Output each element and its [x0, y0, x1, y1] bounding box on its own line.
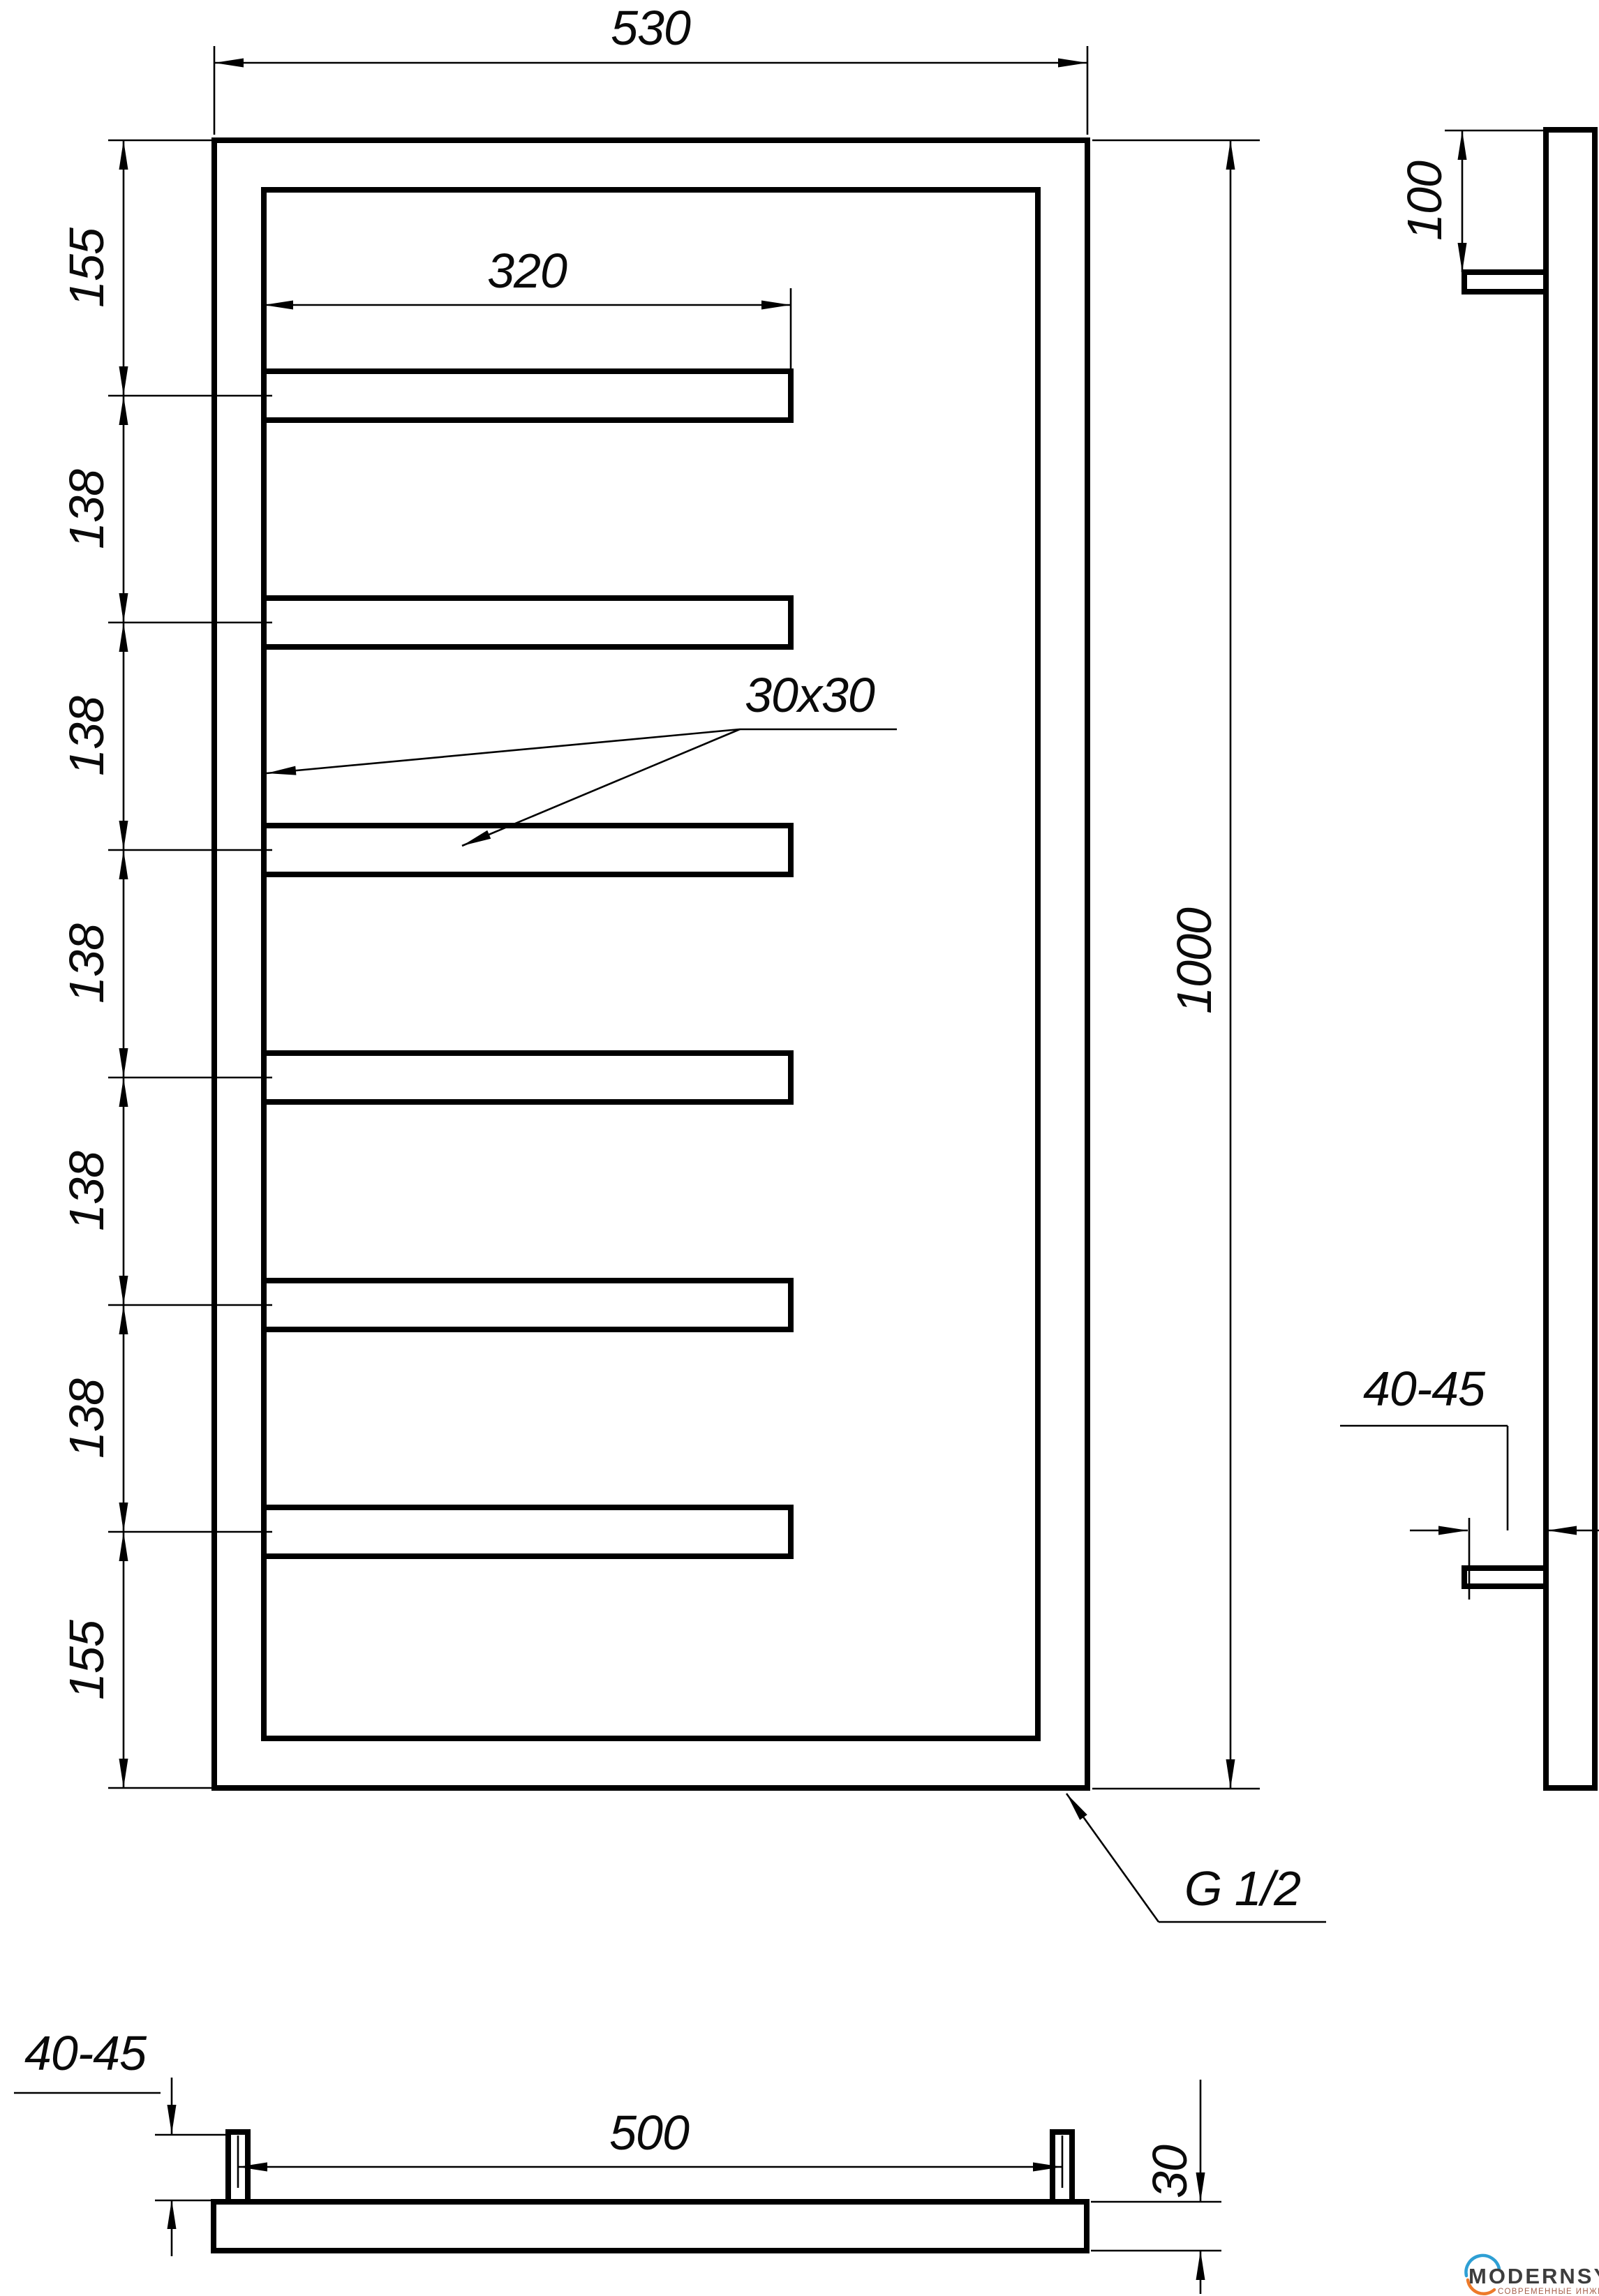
side-rail	[1546, 130, 1595, 1788]
dim-label-30: 30	[1143, 2145, 1197, 2198]
dim-label-40-45-bottom: 40-45	[24, 2026, 147, 2080]
bottom-rail	[214, 2202, 1087, 2251]
dim-bottom-30: 30	[1091, 2080, 1221, 2294]
side-view	[1464, 130, 1595, 1788]
front-bar-1	[264, 371, 791, 420]
front-view	[214, 140, 1087, 1788]
dim-label-138-3: 138	[59, 923, 114, 1004]
logo-brand-text: MODERNSYS	[1468, 2264, 1599, 2288]
logo-tagline-text: СОВРЕМЕННЫЕ ИНЖЕНЕРНЫЕ СИСТЕМЫ	[1498, 2288, 1599, 2296]
front-bar-3	[264, 826, 791, 874]
leader-line	[1066, 1794, 1159, 1922]
leader-thread-g12: G 1/2	[1066, 1794, 1326, 1922]
logo: MODERNSYS СОВРЕМЕННЫЕ ИНЖЕНЕРНЫЕ СИСТЕМЫ	[1466, 2256, 1599, 2296]
front-bar-2	[264, 598, 791, 647]
dim-height-1000: 1000	[1092, 140, 1260, 1789]
dim-label-138-1: 138	[59, 469, 114, 549]
dim-label-530: 530	[611, 1, 691, 55]
dim-label-155-bottom: 155	[59, 1619, 114, 1700]
dim-label-138-5: 138	[59, 1378, 114, 1459]
side-bracket-top	[1464, 272, 1546, 292]
dim-label-155-top: 155	[59, 227, 114, 308]
dim-side-100: 100	[1397, 131, 1567, 272]
dim-width-530: 530	[214, 1, 1087, 135]
front-bar-5	[264, 1281, 791, 1329]
dim-bottom-500: 500	[238, 2105, 1062, 2188]
dim-label-320: 320	[487, 244, 567, 298]
dim-label-g12: G 1/2	[1184, 1861, 1300, 1916]
technical-drawing: 530 320 155 138 138 138 138 138 155	[0, 0, 1599, 2296]
dim-label-1000: 1000	[1167, 907, 1221, 1014]
dim-label-138-4: 138	[59, 1151, 114, 1231]
dim-label-138-2: 138	[59, 696, 114, 776]
dim-bottom-40-45: 40-45	[14, 2026, 228, 2256]
front-bar-4	[264, 1053, 791, 1102]
dim-label-100: 100	[1397, 161, 1452, 241]
side-bracket-bottom	[1464, 1568, 1546, 1586]
dim-label-30x30: 30x30	[745, 668, 875, 722]
front-bar-6	[264, 1507, 791, 1556]
dim-label-40-45-side: 40-45	[1363, 1362, 1486, 1416]
drawing-sheet: 530 320 155 138 138 138 138 138 155	[0, 0, 1599, 2296]
dim-label-500: 500	[609, 2105, 690, 2160]
